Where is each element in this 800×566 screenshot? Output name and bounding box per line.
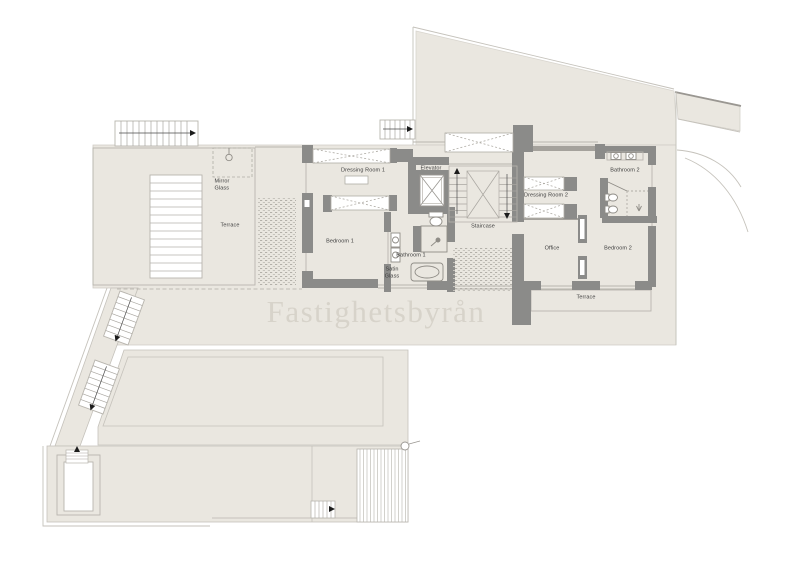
toilet xyxy=(605,194,618,201)
hall-mat-decking xyxy=(453,247,512,292)
wardrobe-dr2-south xyxy=(524,204,564,218)
plunge-pool xyxy=(64,462,93,511)
wardrobe-dr2-north xyxy=(524,177,564,190)
bidet xyxy=(605,206,618,213)
wardrobe-dr1-mid xyxy=(331,196,389,210)
spine-wall xyxy=(512,152,524,222)
entry-stair-top-left xyxy=(115,121,198,146)
spine-wall xyxy=(512,234,524,287)
terrace-left-decking xyxy=(258,198,296,286)
floor-plan-page: Mirror Glass Terrace Dressing Room 1 Ele… xyxy=(0,0,800,566)
dr1-bench xyxy=(345,176,368,184)
pool-corner-marker xyxy=(401,442,409,450)
toilet xyxy=(429,212,443,226)
terrain-curve xyxy=(685,158,748,232)
elevator-shaft xyxy=(415,170,449,211)
louver-slats xyxy=(150,175,202,278)
terrain-curve xyxy=(677,150,741,187)
north-parapet xyxy=(533,146,598,151)
wardrobe-dr1-north xyxy=(313,149,390,163)
spine-pillar xyxy=(512,287,531,325)
floor-plan-drawing xyxy=(0,0,800,566)
slatted-deck xyxy=(357,449,408,522)
watermark: Fastighetsbyrån xyxy=(267,294,486,330)
entry-stair-top-mid xyxy=(380,120,415,139)
skylight xyxy=(445,133,513,152)
